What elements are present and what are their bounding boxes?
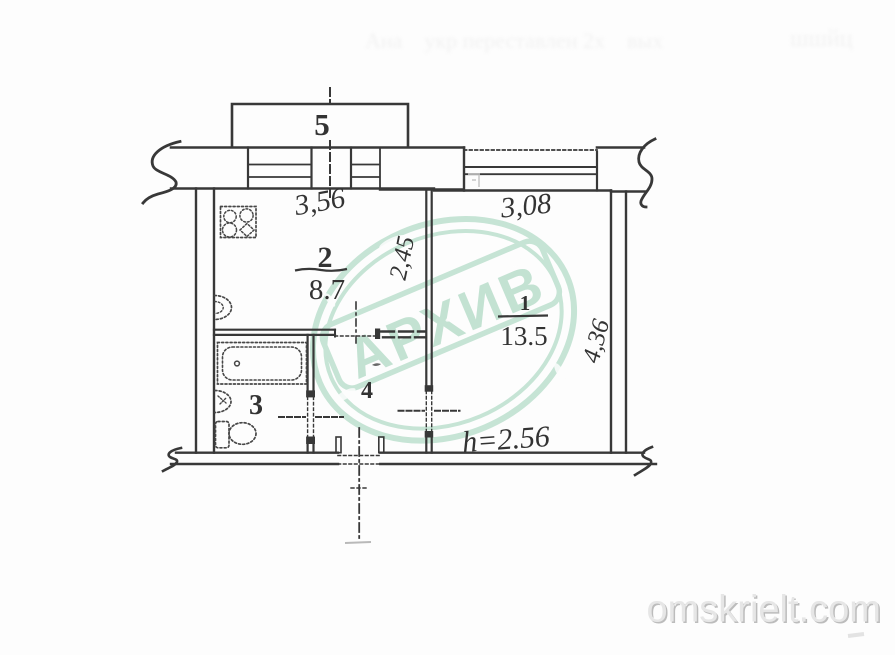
svg-text:3: 3: [249, 390, 263, 421]
svg-text:3,08: 3,08: [498, 187, 553, 224]
svg-text:h=2.56: h=2.56: [461, 420, 551, 459]
svg-text:шшйц: шшйц: [790, 26, 853, 52]
svg-text:8.7: 8.7: [309, 274, 345, 306]
svg-text:Ана укр переставлен 2х в: Ана укр переставлен 2х вых: [365, 28, 663, 53]
svg-text:13.5: 13.5: [500, 321, 547, 351]
svg-text:1: 1: [520, 291, 531, 315]
svg-text:5: 5: [314, 107, 330, 142]
svg-text:omskrielt.com: omskrielt.com: [647, 589, 881, 631]
svg-text:4: 4: [361, 378, 373, 404]
